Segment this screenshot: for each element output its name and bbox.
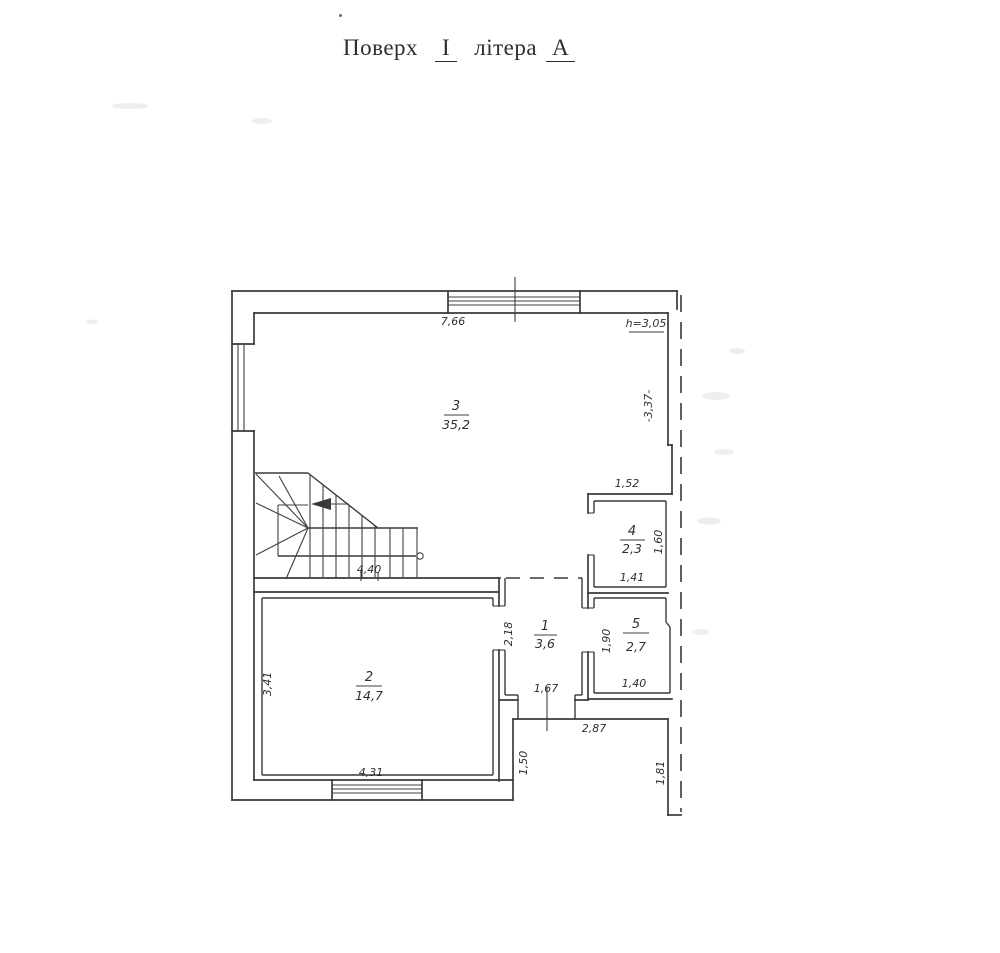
scanned-floor-plan-page: Поверх І літера А [0,0,1000,953]
dim-room5-bottom: 1,40 [622,677,647,690]
room2-walls [254,578,505,781]
dim-room1-bottom: 1,67 [534,682,559,695]
room-1-number: 1 [541,619,549,634]
room-1-area: 3,6 [535,636,555,651]
window-top [448,277,580,322]
room-4-area: 2,3 [622,541,642,556]
dim-room5-side: 1,90 [600,629,613,654]
room-3-number: 3 [452,399,460,414]
dim-right-upper: -3,37- [642,390,655,422]
dim-room2-bottom: 4,31 [359,766,384,779]
window-bottom [332,780,422,800]
dim-room4-side: 1,60 [652,530,665,555]
dim-porch-top: 2,87 [582,722,607,735]
window-left [232,344,254,431]
dim-room1-side: 2,18 [502,622,515,647]
dimension-labels: 7,66 h=3,05 -3,37- 4,40 1,52 1,60 1,41 1… [261,315,667,785]
room3-right-wall [668,313,672,494]
room-labels: 3 35,2 2 14,7 1 3,6 4 2,3 5 2,7 [355,399,649,703]
stair-direction-arrow [311,498,349,510]
stair-newel-circle [417,553,423,559]
dim-porch-left: 1,50 [517,751,530,776]
room-5-area: 2,7 [626,639,646,654]
room1-right-wall [582,494,594,700]
room-5-number: 5 [632,617,640,632]
dim-room2-side: 3,41 [261,672,274,697]
dim-room4-top: 1,52 [615,477,640,490]
dim-room4-bottom: 1,41 [620,571,645,584]
dim-top-width: 7,66 [441,315,466,328]
room-4-number: 4 [628,524,636,539]
height-note: h=3,05 [626,317,667,330]
dim-stair-length: 4,40 [357,563,382,576]
exterior-walls [232,291,677,800]
staircase [255,473,423,581]
floor-plan-drawing: 3 35,2 2 14,7 1 3,6 4 2,3 5 2,7 7,66 h=3… [0,0,1000,953]
paper-bleed-smudges [86,103,745,635]
room-2-area: 14,7 [355,688,383,703]
room-3-area: 35,2 [442,417,470,432]
room-2-number: 2 [365,670,373,685]
dim-porch-right: 1,81 [654,761,667,786]
